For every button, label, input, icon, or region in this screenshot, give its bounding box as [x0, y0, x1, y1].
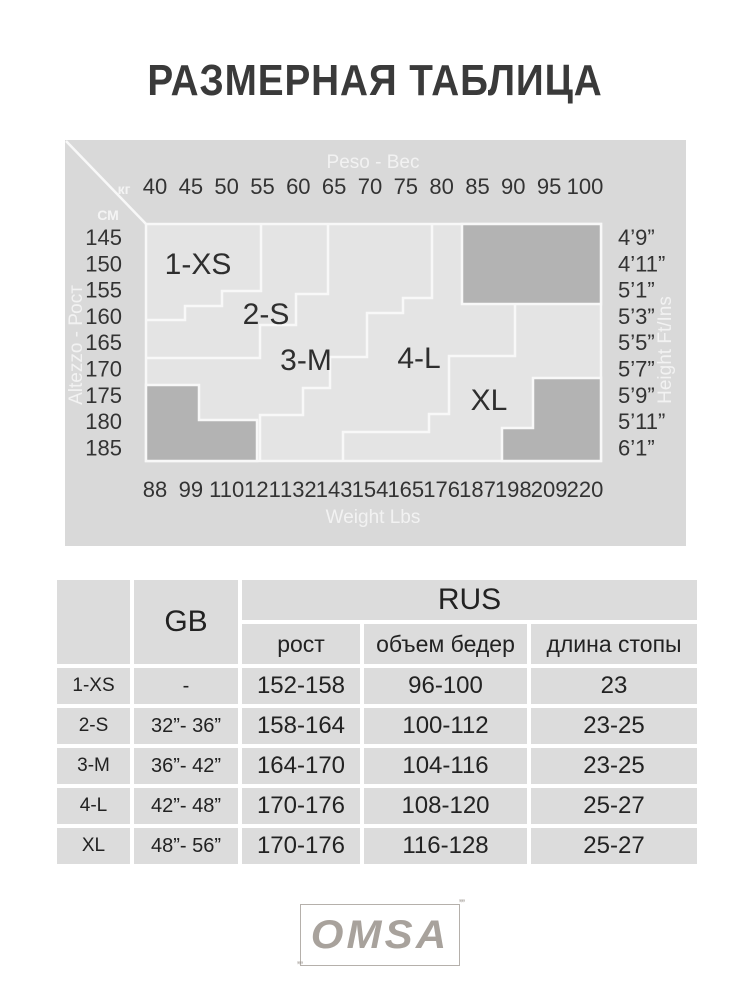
cm-unit-label: СМ: [97, 207, 119, 223]
omsa-logo-text: OMSA: [311, 913, 450, 958]
row-gb-cell: 48”- 56”: [134, 828, 238, 864]
cm-tick: 145: [85, 225, 122, 250]
row-foot-cell: 23: [531, 668, 697, 704]
cm-tick: 175: [85, 383, 122, 408]
row-hips-cell: 104-116: [364, 748, 527, 784]
row-foot-cell: 23-25: [531, 748, 697, 784]
ftins-tick: 6’1”: [618, 435, 655, 460]
rus-column-header: RUS: [242, 580, 697, 620]
subheader-foot: длина стопы: [531, 624, 697, 664]
region-label-m: 3-M: [280, 344, 332, 377]
cm-tick: 170: [85, 357, 122, 382]
kg-unit-label: кг: [118, 181, 131, 197]
row-rost-cell: 164-170: [242, 748, 360, 784]
ftins-tick: 5’11”: [618, 409, 665, 434]
kg-tick: 70: [358, 174, 382, 199]
subheader-hips: объем бедер: [364, 624, 527, 664]
ftins-tick: 5’1”: [618, 278, 655, 303]
lbs-tick: 88: [143, 477, 167, 502]
cm-tick: 160: [85, 304, 122, 329]
lbs-tick: 165: [387, 477, 424, 502]
table-corner-cell: [57, 580, 130, 664]
row-rost-cell: 170-176: [242, 828, 360, 864]
kg-tick: 55: [250, 174, 274, 199]
lbs-tick: 110: [209, 477, 244, 502]
lbs-tick: 209: [531, 477, 568, 502]
row-size-cell: XL: [57, 828, 130, 864]
region-label-xl: XL: [471, 384, 508, 417]
kg-tick: 60: [286, 174, 310, 199]
page-title: РАЗМЕРНАЯ ТАБЛИЦА: [45, 56, 705, 106]
ftins-tick: 4’9”: [618, 225, 655, 250]
row-gb-cell: -: [134, 668, 238, 704]
kg-tick: 65: [322, 174, 346, 199]
cm-tick: 180: [85, 409, 122, 434]
row-hips-cell: 108-120: [364, 788, 527, 824]
omsa-logo: OMSA: [300, 904, 460, 966]
row-size-cell: 2-S: [57, 708, 130, 744]
lbs-tick: 198: [495, 477, 532, 502]
lbs-tick-labels: 8899110121132143154165176187198209220: [143, 477, 604, 502]
size-chart: Peso - Вес кг СМ Weight Lbs Altezzo - Ро…: [65, 140, 686, 546]
blocked-area-top-right: [462, 224, 601, 304]
cm-tick-labels: 145150155160165170175180185: [85, 225, 122, 460]
row-size-cell: 4-L: [57, 788, 130, 824]
kg-tick: 85: [465, 174, 489, 199]
row-hips-cell: 100-112: [364, 708, 527, 744]
lbs-tick: 154: [352, 477, 389, 502]
kg-tick: 80: [429, 174, 453, 199]
subheader-rost: рост: [242, 624, 360, 664]
kg-tick: 45: [179, 174, 203, 199]
ftins-tick: 5’7”: [618, 357, 655, 382]
row-foot-cell: 23-25: [531, 708, 697, 744]
row-gb-cell: 36”- 42”: [134, 748, 238, 784]
kg-tick: 40: [143, 174, 167, 199]
row-gb-cell: 32”- 36”: [134, 708, 238, 744]
lbs-tick: 220: [567, 477, 604, 502]
right-axis-label: Height Ft/Ins: [655, 296, 676, 404]
gb-column-header: GB: [134, 580, 238, 664]
cm-tick: 165: [85, 330, 122, 355]
row-rost-cell: 170-176: [242, 788, 360, 824]
kg-tick: 100: [567, 174, 604, 199]
kg-tick: 50: [214, 174, 238, 199]
kg-tick: 95: [537, 174, 561, 199]
bottom-axis-label: Weight Lbs: [326, 507, 421, 528]
region-label-s: 2-S: [243, 298, 290, 331]
row-hips-cell: 96-100: [364, 668, 527, 704]
row-gb-cell: 42”- 48”: [134, 788, 238, 824]
lbs-tick: 121: [244, 477, 281, 502]
ftins-tick: 5’9”: [618, 383, 655, 408]
row-rost-cell: 152-158: [242, 668, 360, 704]
row-foot-cell: 25-27: [531, 828, 697, 864]
ftins-tick: 5’5”: [618, 330, 655, 355]
ftins-tick: 5’3”: [618, 304, 655, 329]
row-rost-cell: 158-164: [242, 708, 360, 744]
region-label-l: 4-L: [397, 342, 440, 375]
kg-tick: 90: [501, 174, 525, 199]
ftins-tick: 4’11”: [618, 251, 665, 276]
row-size-cell: 3-M: [57, 748, 130, 784]
top-axis-label: Peso - Вес: [327, 152, 420, 173]
cm-tick: 185: [85, 435, 122, 460]
lbs-tick: 143: [316, 477, 353, 502]
lbs-tick: 187: [459, 477, 496, 502]
size-table: GB RUS рост объем бедер длина стопы 1-XS…: [57, 580, 697, 864]
left-axis-label: Altezzo - Рост: [66, 285, 87, 405]
cm-tick: 155: [85, 278, 122, 303]
lbs-tick: 99: [179, 477, 203, 502]
kg-tick: 75: [394, 174, 418, 199]
region-label-xs: 1-XS: [165, 248, 232, 281]
row-foot-cell: 25-27: [531, 788, 697, 824]
lbs-tick: 176: [423, 477, 460, 502]
row-hips-cell: 116-128: [364, 828, 527, 864]
lbs-tick: 132: [280, 477, 317, 502]
cm-tick: 150: [85, 251, 122, 276]
size-chart-page: РАЗМЕРНАЯ ТАБЛИЦА Peso - Вес кг СМ Weigh…: [0, 0, 750, 1000]
row-size-cell: 1-XS: [57, 668, 130, 704]
